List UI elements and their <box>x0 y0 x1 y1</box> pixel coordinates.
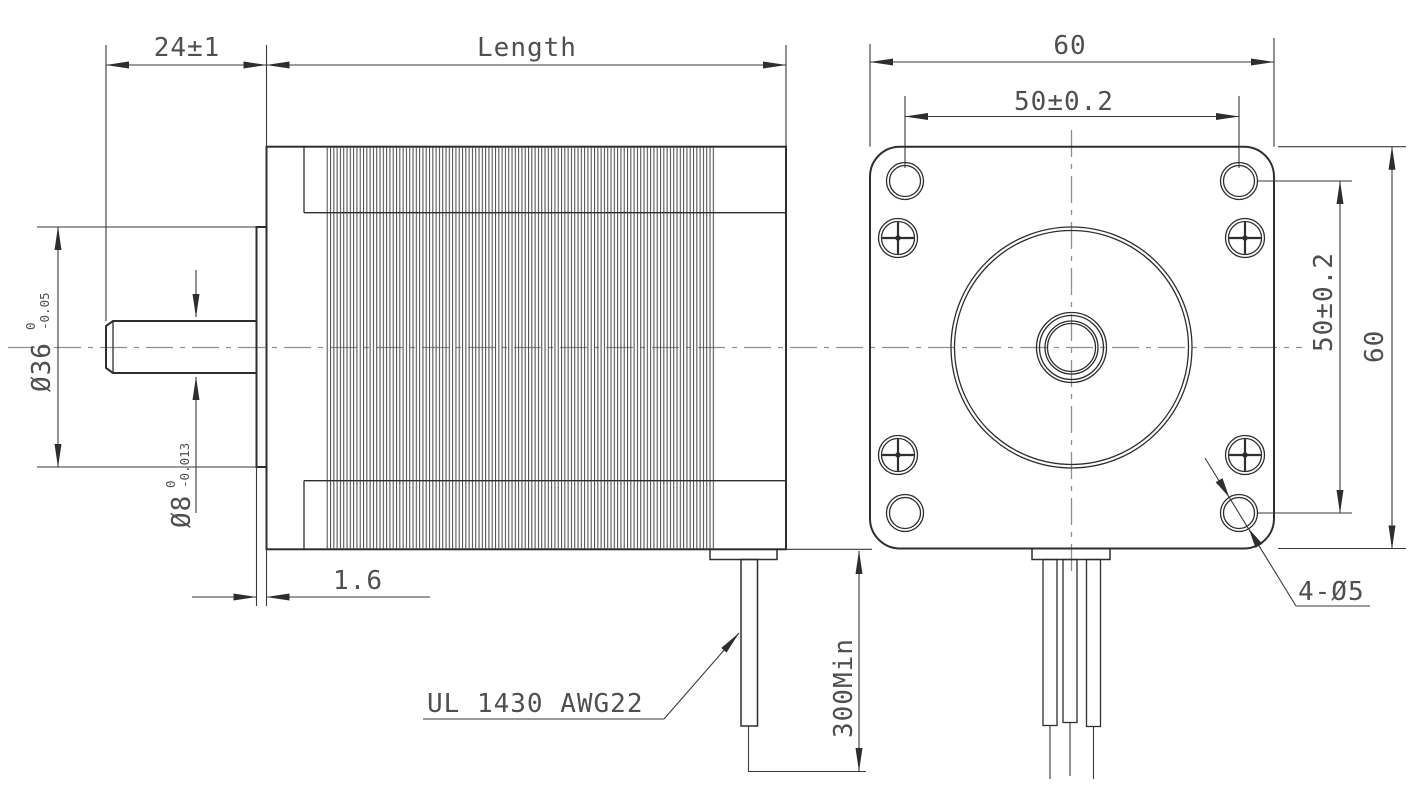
dim-label-hole-pitch-v: 50±0.2 <box>1309 252 1339 352</box>
dim-label-mount-holes: 4-Ø5 <box>1298 577 1365 607</box>
lead-length-value: 300Min <box>829 638 859 738</box>
screw-bottom-left <box>879 436 918 475</box>
shaft-tol-upper: 0 <box>163 480 178 488</box>
height-value: 60 <box>1360 330 1390 363</box>
dim-label-shaft-extension: 24±1 <box>154 33 221 63</box>
dim-label-boss-depth: 1.6 <box>333 566 383 596</box>
screw-top-right <box>1226 219 1265 258</box>
boss-dia-value: Ø36 <box>27 342 57 392</box>
dim-label-width: 60 <box>1053 31 1086 61</box>
dim-label-hole-pitch-h: 50±0.2 <box>1014 87 1114 117</box>
screw-bottom-right <box>1226 436 1265 475</box>
hole-pitch-v-value: 50±0.2 <box>1309 252 1339 352</box>
lead-spec-label: UL 1430 AWG22 <box>427 689 644 719</box>
technical-drawing-page: 24±1 Length Ø36 0 -0.05 Ø8 0 -0 <box>0 0 1421 789</box>
shaft-dia-value: Ø8 <box>167 495 197 528</box>
lamination-hatch <box>326 148 715 549</box>
boss-tol-upper: 0 <box>23 322 38 330</box>
shaft-tol-lower: -0.013 <box>177 443 192 488</box>
dim-label-length: Length <box>477 33 577 63</box>
screw-top-left <box>879 219 918 258</box>
boss-tol-lower: -0.05 <box>37 292 52 330</box>
dim-label-height: 60 <box>1360 330 1390 363</box>
motor-dimension-drawing: 24±1 Length Ø36 0 -0.05 Ø8 0 -0 <box>0 0 1421 789</box>
dim-label-lead-length: 300Min <box>829 638 859 738</box>
